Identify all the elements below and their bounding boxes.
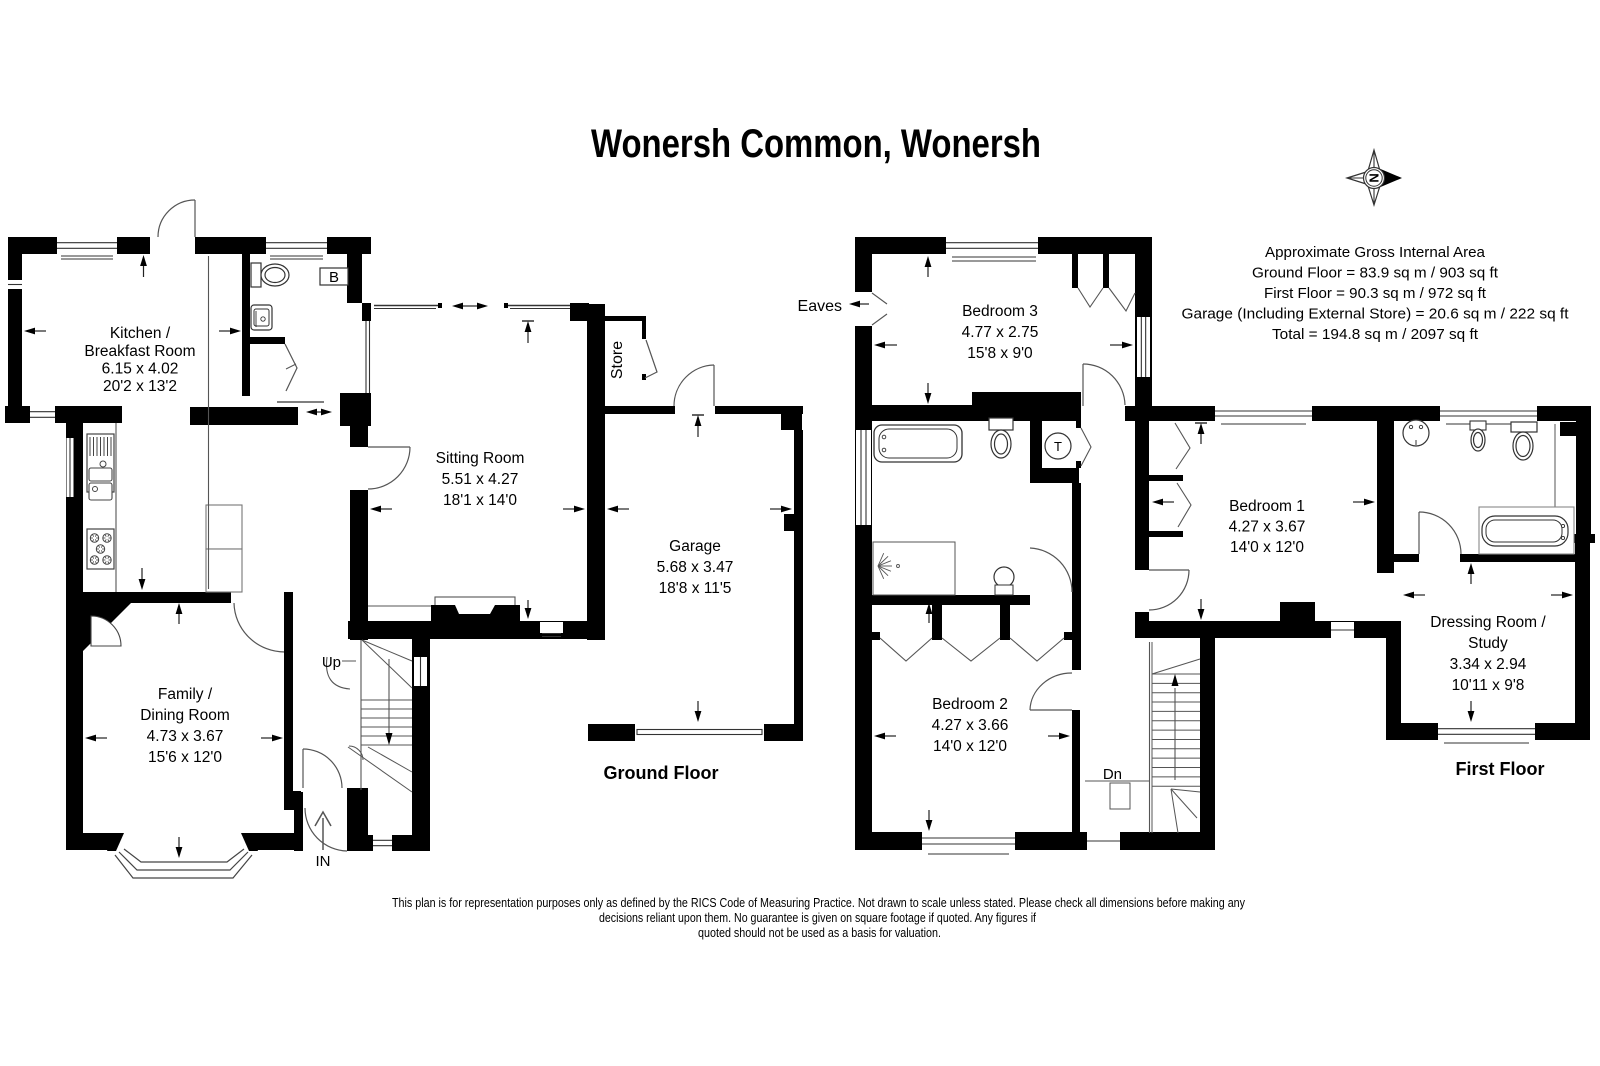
- svg-text:Wonersh Common, Wonersh: Wonersh Common, Wonersh: [591, 122, 1041, 166]
- svg-text:20'2 x 13'2: 20'2 x 13'2: [103, 378, 177, 395]
- svg-text:IN: IN: [316, 853, 331, 870]
- svg-text:Family /: Family /: [158, 686, 213, 703]
- svg-text:6.15 x 4.02: 6.15 x 4.02: [102, 361, 179, 378]
- svg-text:Eaves: Eaves: [798, 298, 842, 315]
- svg-text:B: B: [329, 269, 339, 286]
- svg-text:4.73 x 3.67: 4.73 x 3.67: [147, 728, 224, 745]
- svg-text:Kitchen /: Kitchen /: [110, 325, 171, 342]
- svg-text:10'11 x 9'8: 10'11 x 9'8: [1452, 677, 1525, 694]
- svg-text:Bedroom 2: Bedroom 2: [932, 696, 1008, 713]
- svg-text:Ground Floor = 83.9 sq m / 903: Ground Floor = 83.9 sq m / 903 sq ft: [1252, 265, 1499, 282]
- svg-text:Bedroom 1: Bedroom 1: [1229, 498, 1305, 515]
- svg-text:18'8 x 11'5: 18'8 x 11'5: [659, 580, 732, 597]
- svg-text:quoted should not be used as a: quoted should not be used as a basis for…: [698, 925, 941, 940]
- svg-text:decisions reliant upon them. N: decisions reliant upon them. No guarante…: [599, 910, 1036, 925]
- svg-text:Approximate Gross Internal Are: Approximate Gross Internal Area: [1265, 244, 1486, 261]
- svg-text:Store: Store: [609, 341, 626, 379]
- svg-text:15'6 x 12'0: 15'6 x 12'0: [148, 749, 222, 766]
- svg-text:Dn: Dn: [1103, 766, 1122, 783]
- svg-text:Ground Floor: Ground Floor: [604, 763, 719, 783]
- svg-text:N: N: [1367, 173, 1382, 182]
- svg-text:Bedroom 3: Bedroom 3: [962, 303, 1038, 320]
- svg-text:Total = 194.8 sq m / 2097 sq f: Total = 194.8 sq m / 2097 sq ft: [1272, 326, 1479, 343]
- svg-text:Sitting Room: Sitting Room: [436, 450, 525, 467]
- svg-text:18'1 x 14'0: 18'1 x 14'0: [443, 492, 517, 509]
- svg-text:5.68 x 3.47: 5.68 x 3.47: [657, 559, 734, 576]
- svg-text:15'8 x 9'0: 15'8 x 9'0: [967, 345, 1033, 362]
- svg-text:14'0 x 12'0: 14'0 x 12'0: [933, 738, 1007, 755]
- svg-text:4.27 x 3.67: 4.27 x 3.67: [1229, 519, 1306, 536]
- svg-text:Garage: Garage: [669, 538, 721, 555]
- svg-text:4.27 x 3.66: 4.27 x 3.66: [932, 717, 1009, 734]
- svg-text:Breakfast Room: Breakfast Room: [84, 343, 195, 360]
- svg-text:This plan is for representatio: This plan is for representation purposes…: [392, 895, 1245, 910]
- svg-text:Dining Room: Dining Room: [140, 707, 230, 724]
- svg-text:Garage (Including External Sto: Garage (Including External Store) = 20.6…: [1182, 306, 1570, 323]
- svg-text:Study: Study: [1468, 635, 1508, 652]
- svg-text:5.51 x 4.27: 5.51 x 4.27: [442, 471, 519, 488]
- svg-text:First Floor = 90.3 sq m / 972: First Floor = 90.3 sq m / 972 sq ft: [1264, 285, 1487, 302]
- svg-text:First Floor: First Floor: [1456, 759, 1545, 779]
- svg-text:4.77 x 2.75: 4.77 x 2.75: [962, 324, 1039, 341]
- svg-text:14'0 x 12'0: 14'0 x 12'0: [1230, 539, 1304, 556]
- svg-text:Dressing Room /: Dressing Room /: [1430, 614, 1546, 631]
- svg-text:T: T: [1054, 439, 1062, 454]
- svg-text:Up: Up: [322, 654, 341, 671]
- svg-text:3.34 x 2.94: 3.34 x 2.94: [1450, 656, 1527, 673]
